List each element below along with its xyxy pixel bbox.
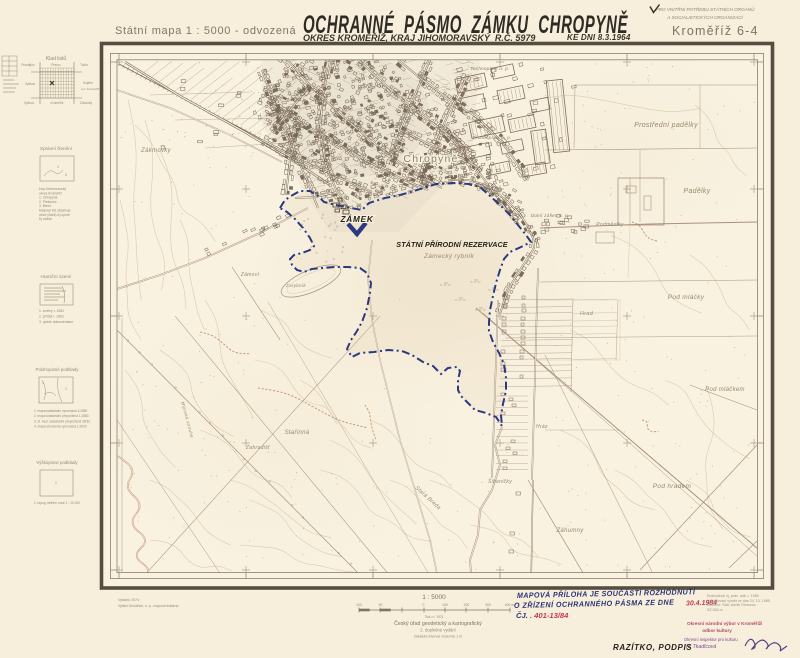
svg-text:200: 200 [464, 603, 470, 607]
svg-text:2. doplněné vydání: 2. doplněné vydání [420, 628, 456, 633]
svg-text:Tisk z r. 1974: Tisk z r. 1974 [425, 615, 444, 619]
svg-text:1 : 5000: 1 : 5000 [422, 594, 446, 601]
svg-text:100: 100 [442, 603, 448, 607]
svg-text:50: 50 [379, 603, 383, 607]
svg-text:Vydáno 1974: Vydáno 1974 [118, 598, 139, 602]
svg-text:400 m: 400 m [505, 603, 515, 607]
svg-text:Vytiskl Geodézie, n. p., mapo: Vytiskl Geodézie, n. p., mapová tiskárna [118, 604, 178, 608]
svg-text:100: 100 [356, 603, 362, 607]
svg-text:300: 300 [485, 603, 491, 607]
svg-text:0: 0 [423, 603, 425, 607]
svg-text:Základní interval vrstevnic 1: Základní interval vrstevnic 1 m [414, 635, 463, 639]
svg-text:Český úřad geodetický a kartog: Český úřad geodetický a kartografický [394, 620, 482, 627]
